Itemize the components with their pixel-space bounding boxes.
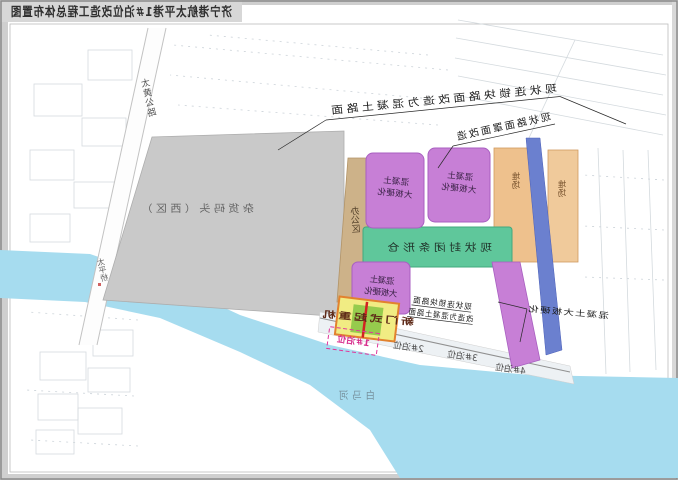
- river-label: 白马河: [335, 389, 375, 402]
- wharf-label: 杂货码头（西区）: [138, 202, 254, 215]
- drawing-title: 济宁港航太平港1#泊位改造工程总体布置图: [10, 4, 232, 19]
- svg-text:混凝土大板硬化: 混凝土大板硬化: [527, 303, 610, 320]
- plan-canvas: 济宁港航太平港1#泊位改造工程总体布置图 太黄公路 太平桥 白马河 杂货码头（西…: [0, 0, 678, 480]
- shed-label: 现状封闭条形仓: [384, 241, 492, 254]
- yard-b-label: 堆场: [558, 179, 568, 198]
- note-quay: 现状连锁块路面 改造为混凝土路面: [407, 294, 475, 324]
- yard-strip-b: [548, 150, 578, 262]
- site-plan-drawing: 济宁港航太平港1#泊位改造工程总体布置图 太黄公路 太平桥 白马河 杂货码头（西…: [0, 0, 678, 480]
- bridge-mark-red: [98, 283, 101, 286]
- svg-text:现状连锁块路面改造为混凝土路面: 现状连锁块路面改造为混凝土路面: [327, 82, 557, 117]
- wharf-area: [103, 131, 344, 317]
- yard-a-label: 堆场: [512, 171, 522, 190]
